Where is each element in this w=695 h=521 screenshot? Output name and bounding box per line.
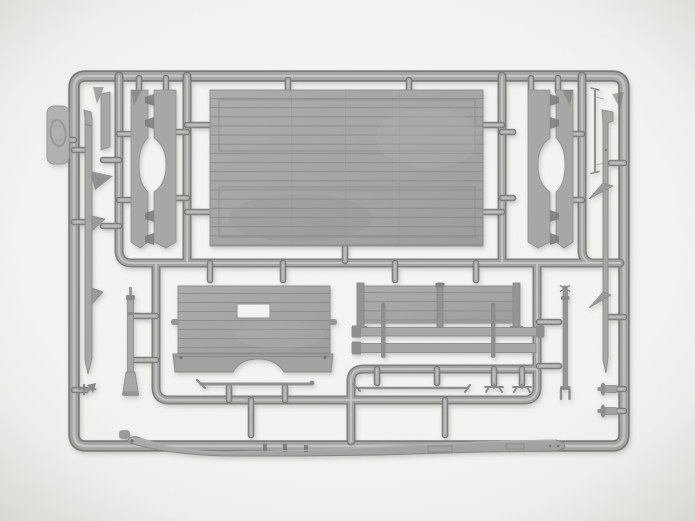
photo-vignette	[0, 0, 695, 521]
sprue-photo-canvas	[0, 0, 695, 521]
model-kit-sprue-photo	[0, 0, 695, 521]
